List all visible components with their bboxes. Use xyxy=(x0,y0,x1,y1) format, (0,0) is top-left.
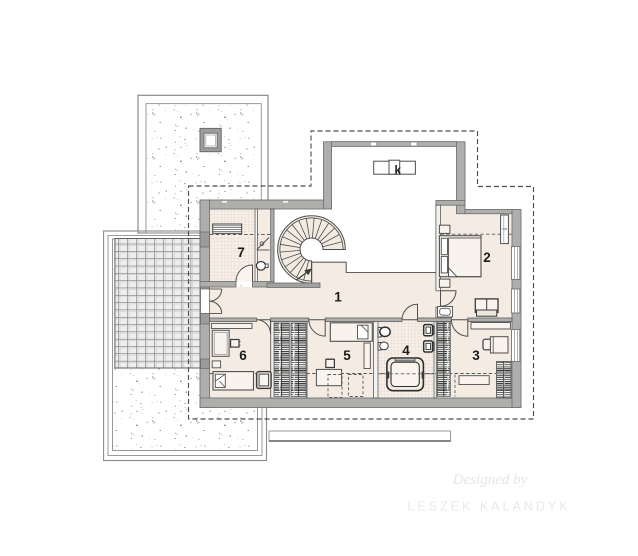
svg-text:4: 4 xyxy=(402,343,410,358)
svg-text:1: 1 xyxy=(334,290,342,305)
svg-text:5: 5 xyxy=(343,348,351,363)
svg-text:LESZEK KALANDYK: LESZEK KALANDYK xyxy=(407,500,570,514)
svg-text:3: 3 xyxy=(472,348,480,363)
svg-text:7: 7 xyxy=(237,245,245,260)
svg-text:Designed by: Designed by xyxy=(452,472,528,488)
svg-text:k: k xyxy=(395,165,402,177)
svg-text:6: 6 xyxy=(239,348,247,363)
svg-text:2: 2 xyxy=(483,250,491,265)
